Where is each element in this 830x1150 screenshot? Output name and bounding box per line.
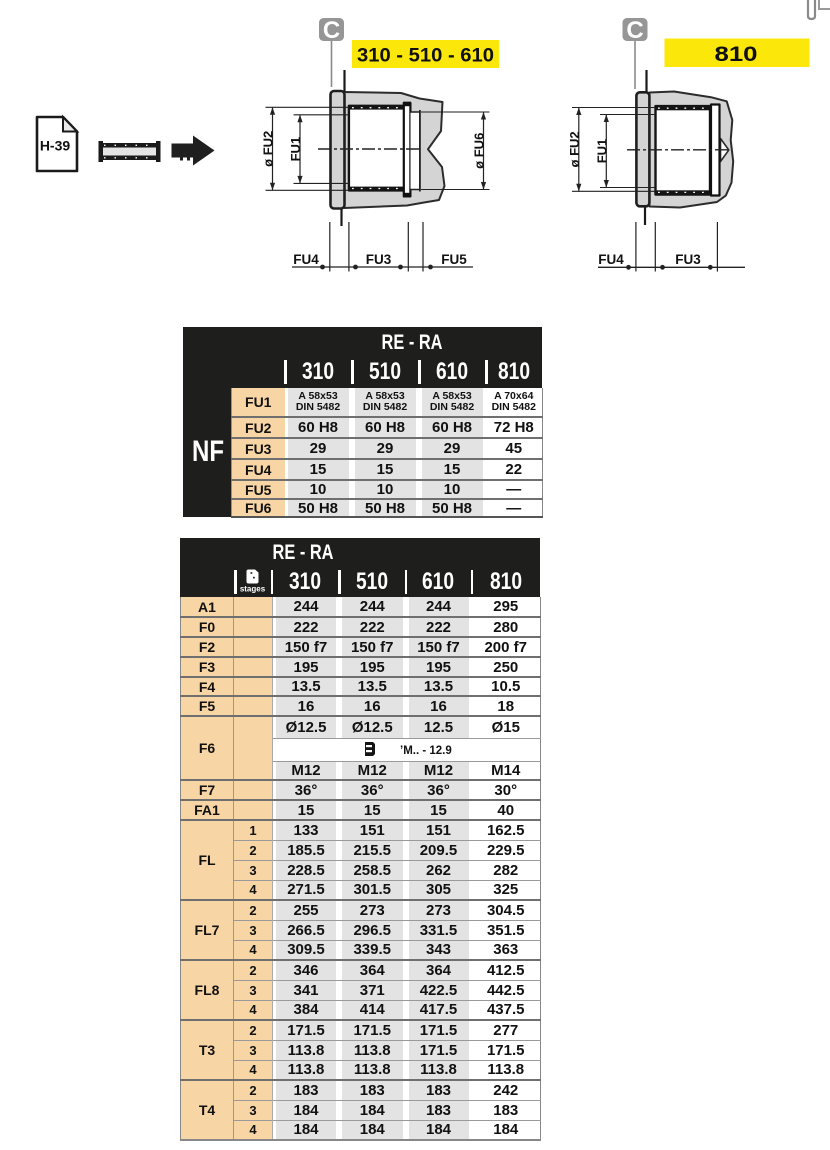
- svg-text:FU4: FU4: [598, 252, 624, 267]
- svg-text:C: C: [323, 17, 340, 44]
- svg-text:FU5: FU5: [441, 252, 467, 267]
- svg-text:ø FU2: ø FU2: [567, 131, 582, 167]
- svg-text:310 - 510 - 610: 310 - 510 - 610: [357, 45, 494, 67]
- svg-text:FU3: FU3: [675, 252, 701, 267]
- svg-text:FU1: FU1: [288, 137, 303, 162]
- svg-text:FU3: FU3: [366, 252, 392, 267]
- svg-text:FU4: FU4: [293, 252, 319, 267]
- svg-text:ø FU2: ø FU2: [261, 131, 276, 167]
- svg-text:FU1: FU1: [595, 139, 610, 164]
- svg-text:810: 810: [715, 43, 758, 66]
- svg-text:C: C: [626, 17, 643, 44]
- svg-text:H-39: H-39: [40, 138, 71, 154]
- svg-text:ø FU6: ø FU6: [472, 133, 487, 169]
